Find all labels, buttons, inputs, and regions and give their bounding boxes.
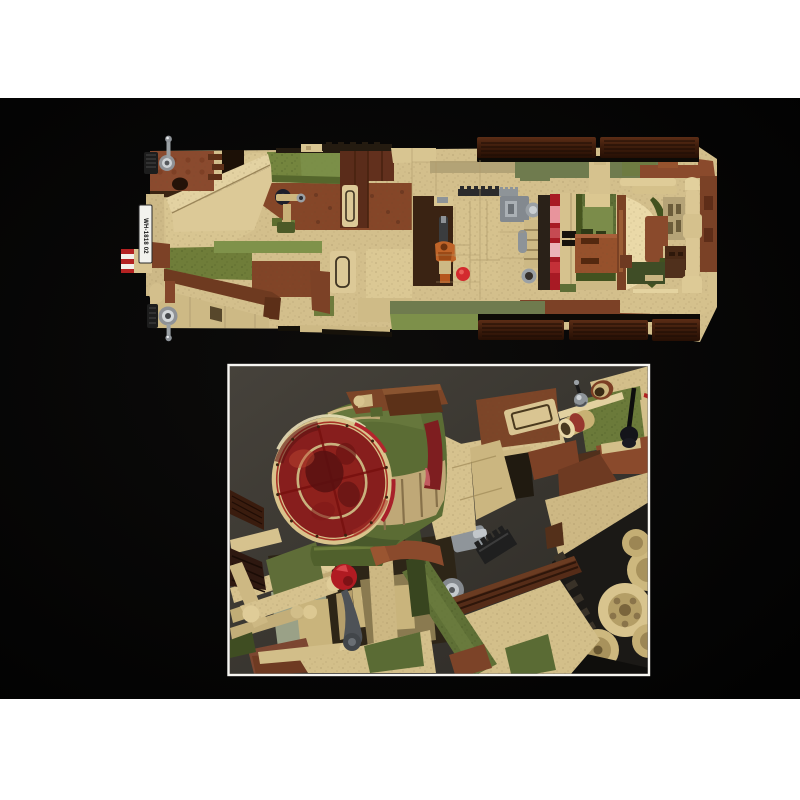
svg-text:WH-1818 02: WH-1818 02 [142, 218, 148, 254]
